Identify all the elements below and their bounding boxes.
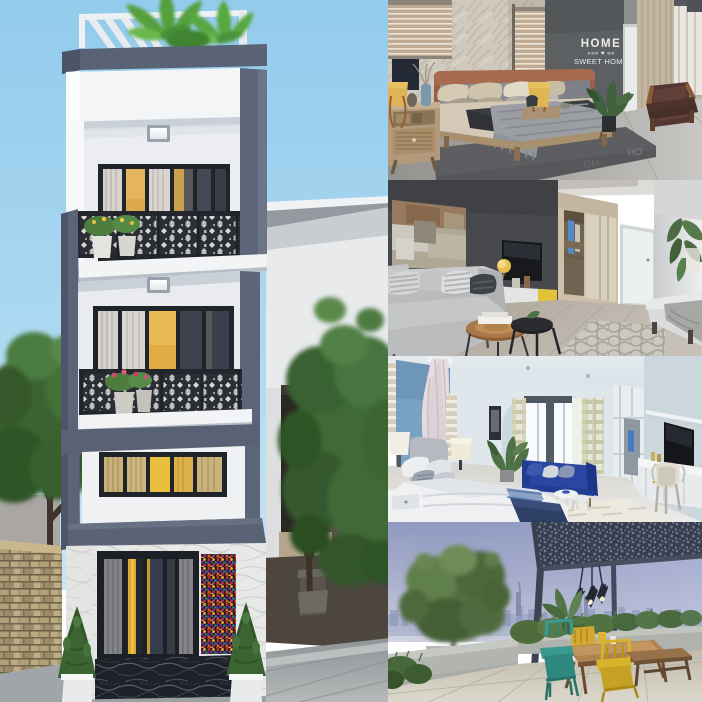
- svg-text:HOME: HOME: [581, 38, 622, 50]
- svg-text:OM: OM: [583, 158, 600, 171]
- svg-text:HO: HO: [627, 146, 643, 159]
- svg-text:SWEET HOME: SWEET HOME: [574, 57, 628, 66]
